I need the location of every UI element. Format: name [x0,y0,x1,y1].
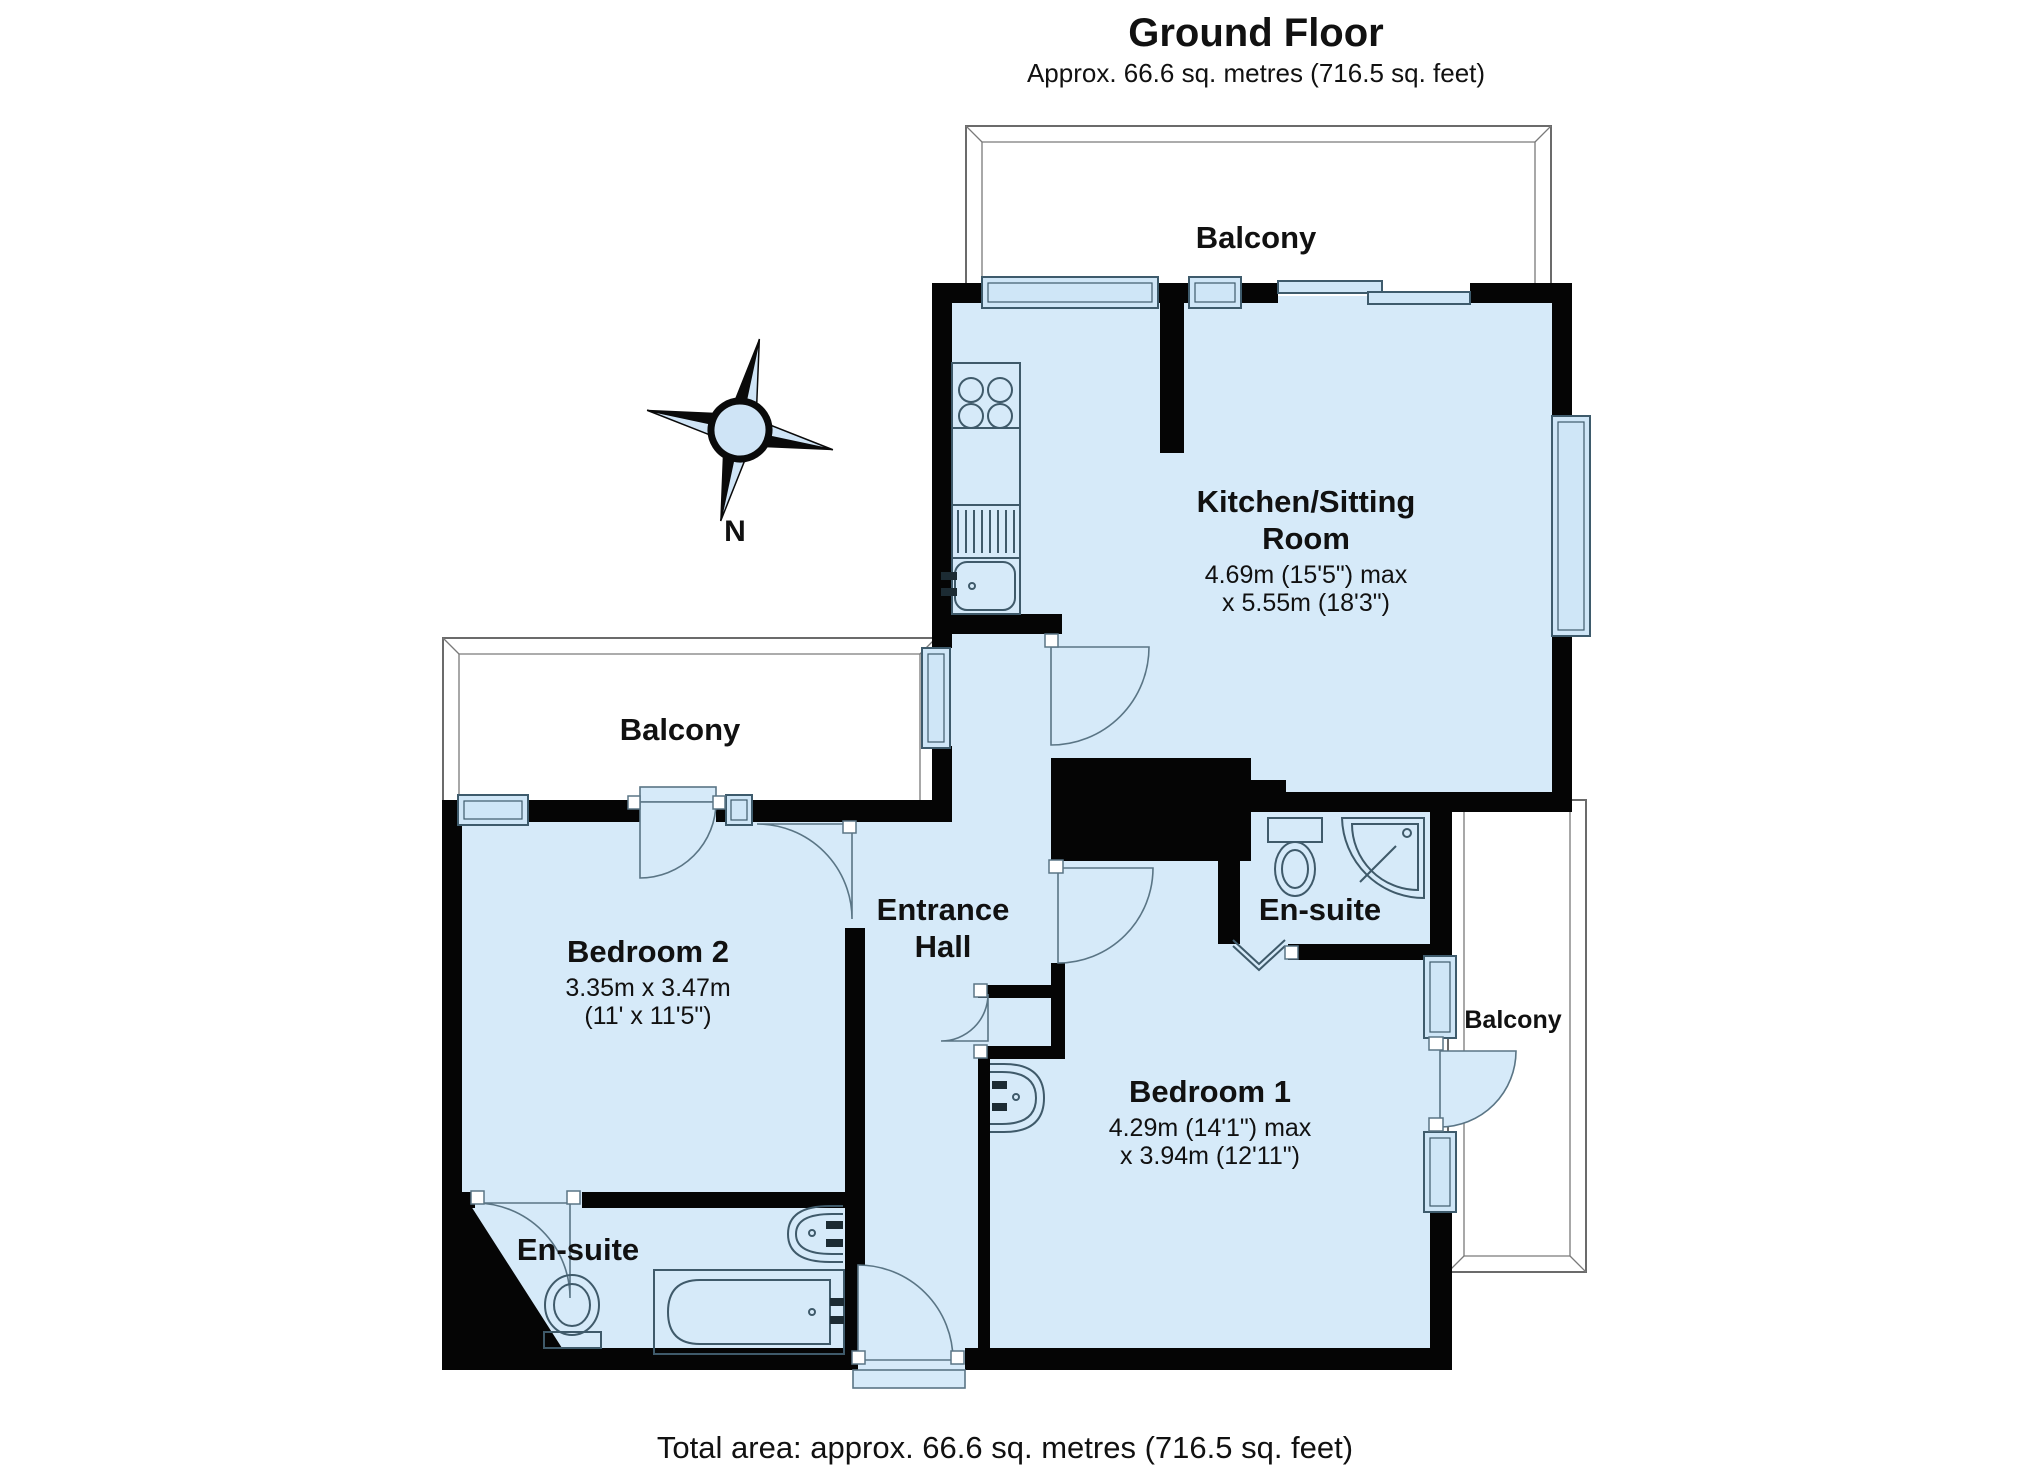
window [1424,956,1456,1038]
balcony-right-floor [1448,800,1586,1272]
entrance-threshold [853,1370,965,1388]
compass-rose: N [628,319,853,548]
wall [1430,1212,1452,1348]
wall [965,1348,1452,1370]
compass-star [628,319,853,540]
page-subtitle: Approx. 66.6 sq. metres (716.5 sq. feet) [1027,58,1485,88]
balcony-top-floor [966,126,1551,296]
door-pivot [1049,860,1063,873]
balcony-right: Balcony [1448,800,1586,1272]
wall [1218,812,1240,944]
floorplan-image: Balcony Balcony Balcony [0,0,2025,1473]
tap-icon [826,1221,843,1229]
compass-north-label: N [724,515,746,548]
bedroom2-label: Bedroom 2 [567,934,729,969]
page-title: Ground Floor [1128,11,1384,55]
door-pivot [1429,1118,1443,1131]
entrance-hall-label-line2: Hall [915,929,972,964]
wall-kitchen-divider [1160,303,1184,453]
bedroom2-dims-line2: (11' x 11'5") [584,1002,711,1030]
door-pivot [843,821,856,833]
wall [1552,634,1572,804]
wall [582,1192,845,1208]
wall [442,800,462,1203]
bedroom1-dims-line1: 4.29m (14'1") max [1109,1114,1312,1142]
kitchen-label-line1: Kitchen/Sitting [1197,484,1416,519]
kitchen-dims-line1: 4.69m (15'5") max [1205,561,1408,589]
wall-cupboard-top [978,985,1052,998]
wall [1241,283,1278,303]
window [1189,277,1241,308]
door-pivot [974,984,987,997]
door-pivot [713,796,725,809]
door-pivot [951,1351,964,1364]
ensuite2-label: En-suite [517,1232,639,1267]
bedroom2-dims-line1: 3.35m x 3.47m [565,974,730,1002]
tap-icon [941,588,957,596]
entrance-hall-label-line1: Entrance [877,892,1010,927]
wall [1552,283,1572,418]
tap-icon [830,1316,844,1324]
balcony-right-label: Balcony [1464,1006,1561,1034]
bedroom1-dims-line2: x 3.94m (12'11") [1120,1142,1300,1170]
ensuite1-label: En-suite [1259,892,1381,927]
door-pivot [1045,634,1058,647]
wall [442,1348,858,1370]
kitchen-dims-line2: x 5.55m (18'3") [1222,589,1390,617]
door-pivot [974,1045,987,1058]
wall [1240,780,1286,812]
kitchen-label-line2: Room [1262,521,1350,556]
door-leaf-bedroom2-balcony [640,787,716,802]
window [922,648,950,748]
door-pivot [567,1191,580,1204]
window [458,795,528,825]
wall [528,800,640,822]
tap-icon [992,1103,1007,1111]
wall [978,1059,990,1348]
balcony-left-label: Balcony [620,712,741,747]
total-area-label: Total area: approx. 66.6 sq. metres (716… [657,1430,1353,1465]
window [982,277,1158,308]
door-pivot [1285,946,1298,959]
wall [932,614,1062,634]
bedroom1-label: Bedroom 1 [1129,1074,1291,1109]
wall [1240,792,1572,812]
wall [1051,963,1065,1058]
door-pivot [852,1351,865,1364]
balcony-left: Balcony [443,638,936,800]
wall [932,746,952,806]
door-pivot [628,796,640,809]
balcony-top-label: Balcony [1196,220,1317,255]
wall [1158,283,1189,303]
balcony-top: Balcony [966,126,1551,296]
window [1424,1132,1456,1212]
door-pivot [1429,1037,1443,1050]
tap-icon [826,1239,843,1247]
wall-cupboard-bottom [978,1046,1065,1059]
tap-icon [830,1298,844,1306]
sliding-door-panel [1278,281,1382,293]
floorplan-svg: Balcony Balcony Balcony [0,0,2025,1473]
wall [1288,944,1430,960]
wall [1430,812,1452,946]
sliding-door-panel [1368,292,1470,304]
door-pivot [471,1191,484,1204]
room-fills [452,293,1562,1370]
tap-icon [992,1081,1007,1089]
hall-upper-area [942,624,1051,812]
compass-hub-icon [706,396,775,465]
wall [752,800,952,822]
tap-icon [941,572,957,580]
